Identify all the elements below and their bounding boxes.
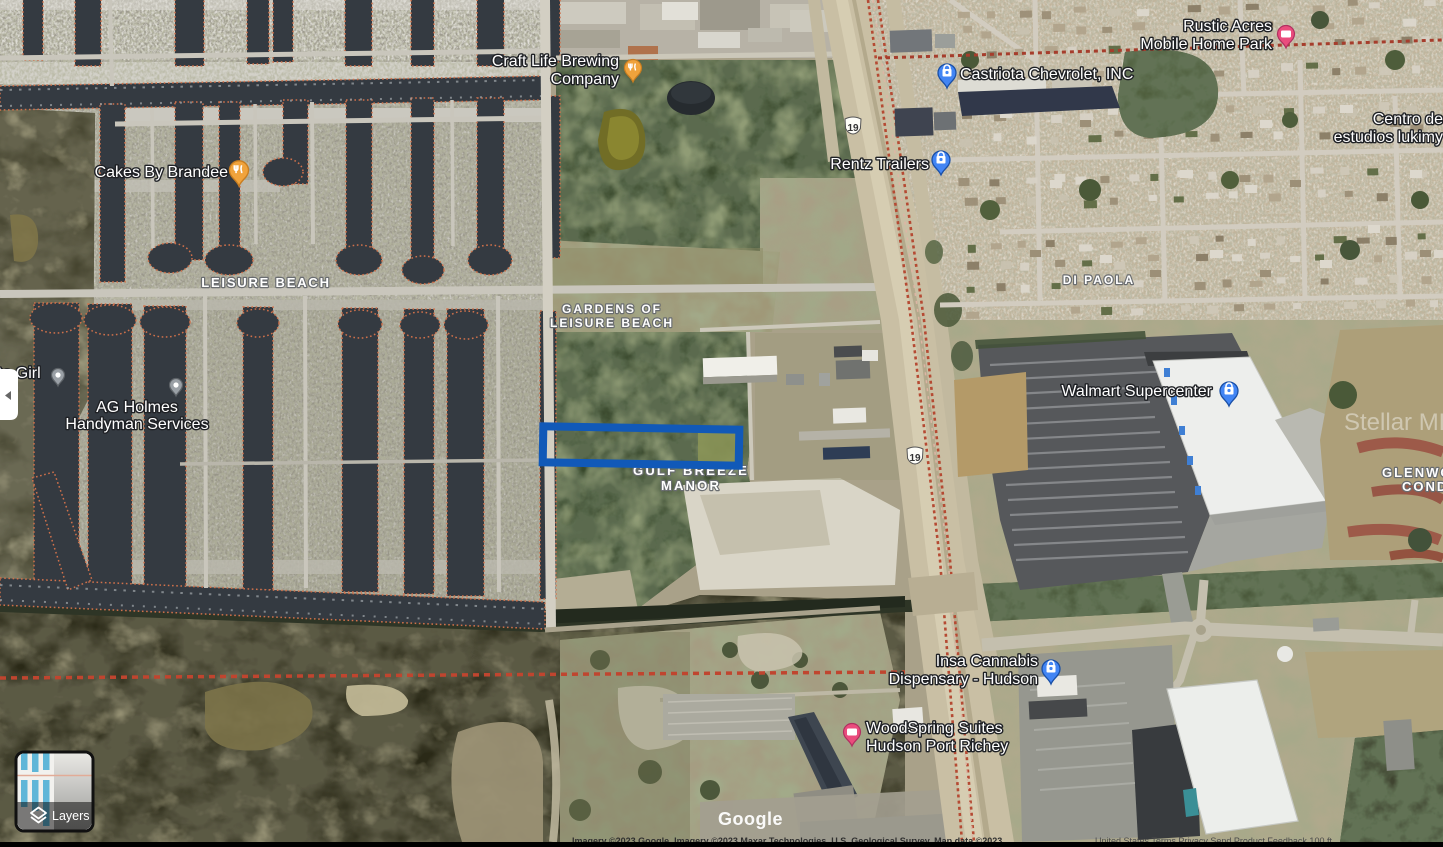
svg-text:GARDENS OF: GARDENS OF [562, 302, 662, 316]
svg-text:GLENWOO: GLENWOO [1382, 465, 1443, 480]
svg-text:19: 19 [847, 123, 859, 134]
svg-text:estudios lukimy: estudios lukimy [1334, 129, 1443, 146]
svg-text:Craft Life Brewing: Craft Life Brewing [492, 53, 619, 70]
svg-text:LEISURE BEACH: LEISURE BEACH [201, 275, 331, 290]
svg-text:Mobile Home Park: Mobile Home Park [1140, 36, 1273, 53]
svg-text:Stellar MLS: Stellar MLS [1344, 409, 1443, 436]
svg-text:Imagery ©2023 Google, Imagery: Imagery ©2023 Google, Imagery ©2023 Maxa… [572, 836, 1002, 842]
svg-text:19: 19 [909, 453, 921, 464]
svg-text:United States Terms Privac: United States Terms Privacy Send Product… [1095, 836, 1332, 842]
svg-text:MANOR: MANOR [661, 478, 721, 493]
svg-text:WoodSpring Suites: WoodSpring Suites [866, 720, 1003, 737]
svg-text:Rentz Trailers: Rentz Trailers [830, 156, 929, 173]
svg-text:Cakes By Brandee: Cakes By Brandee [95, 164, 229, 181]
svg-text:AG Holmes: AG Holmes [96, 399, 178, 416]
svg-text:DI PAOLA: DI PAOLA [1063, 273, 1135, 287]
svg-text:Walmart Supercenter: Walmart Supercenter [1061, 383, 1212, 400]
svg-text:LEISURE BEACH: LEISURE BEACH [550, 316, 674, 330]
svg-text:Layers: Layers [52, 809, 90, 823]
svg-text:Dispensary - Hudson: Dispensary - Hudson [889, 671, 1038, 688]
svg-text:Centro de: Centro de [1373, 111, 1443, 128]
svg-text:Hudson Port Richey: Hudson Port Richey [866, 738, 1008, 755]
svg-text:Handyman Services: Handyman Services [65, 416, 208, 433]
svg-text:Insa Cannabis: Insa Cannabis [936, 653, 1038, 670]
svg-text:Rustic Acres: Rustic Acres [1183, 18, 1272, 35]
svg-text:Castriota Chevrolet, INC: Castriota Chevrolet, INC [960, 66, 1133, 83]
svg-text:Company: Company [551, 71, 619, 88]
svg-text:CONDO: CONDO [1402, 479, 1443, 494]
svg-text:Google: Google [718, 809, 783, 829]
